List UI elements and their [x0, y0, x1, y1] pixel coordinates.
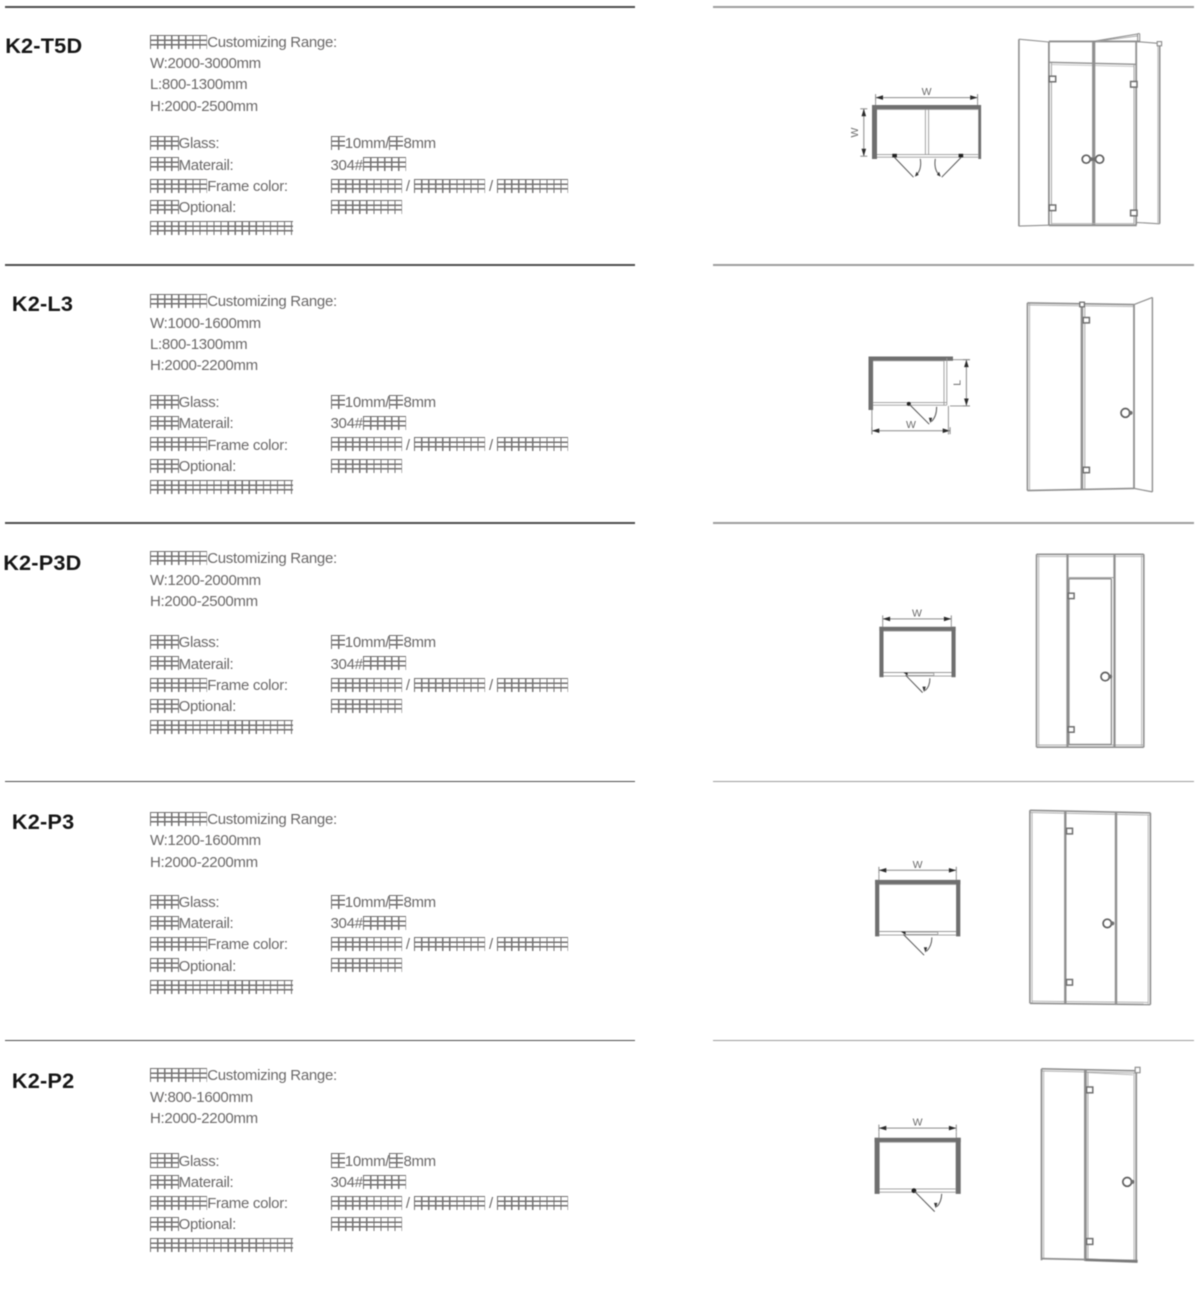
svg-text:W: W — [913, 859, 923, 871]
svg-text:W: W — [922, 86, 932, 98]
svg-text:W: W — [906, 419, 916, 431]
svg-text:W: W — [849, 127, 861, 137]
svg-text:W: W — [913, 1117, 923, 1129]
svg-text:L: L — [951, 380, 963, 386]
svg-text:W: W — [912, 607, 922, 619]
